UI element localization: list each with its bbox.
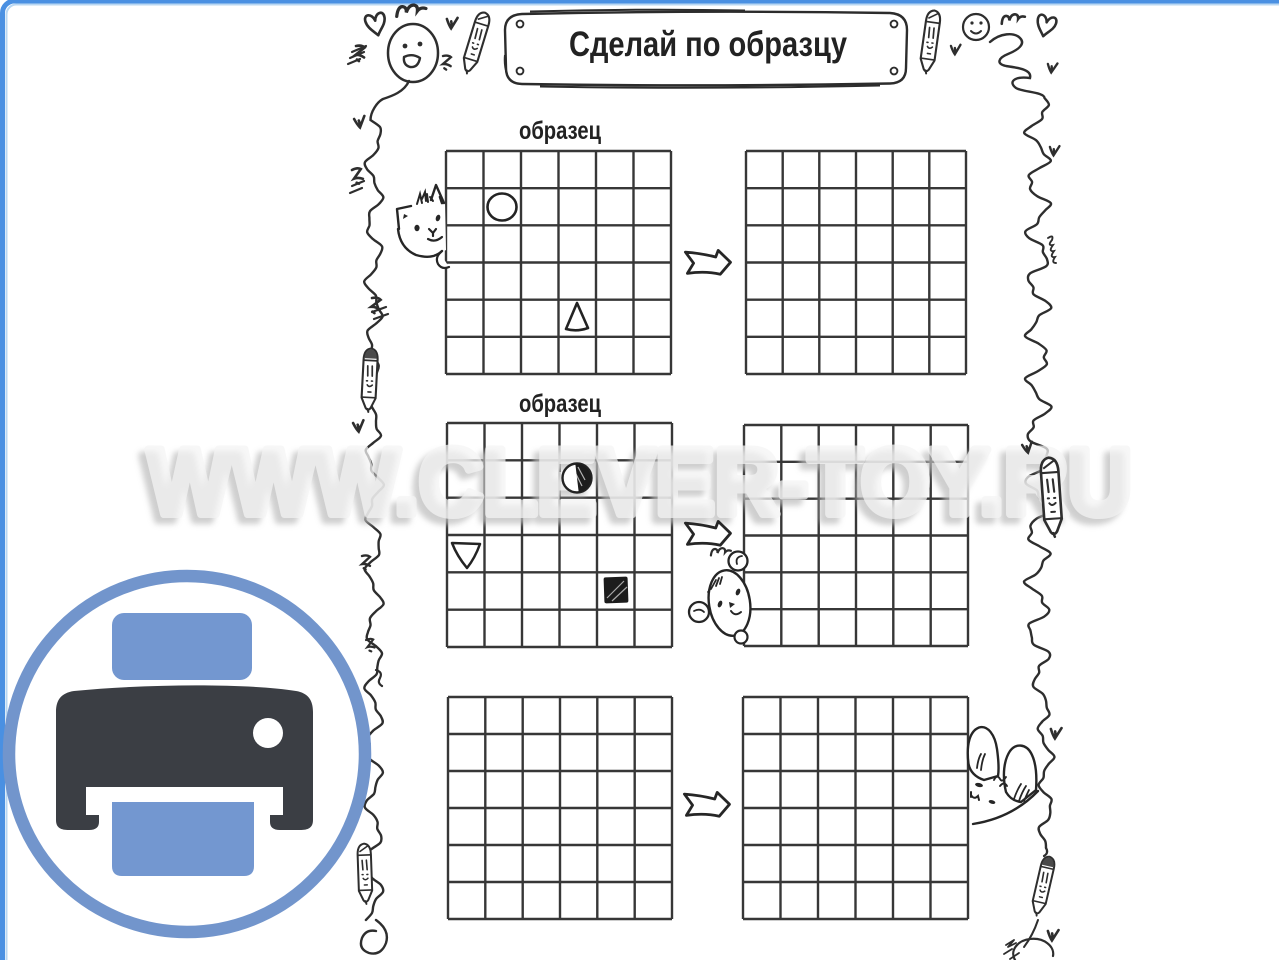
- svg-text:образец: образец: [519, 117, 602, 145]
- svg-text:образец: образец: [519, 390, 602, 418]
- svg-text:WWW.CLEVER-TOY.RU: WWW.CLEVER-TOY.RU: [148, 429, 1132, 534]
- svg-text:Сделай по образцу: Сделай по образцу: [569, 25, 847, 64]
